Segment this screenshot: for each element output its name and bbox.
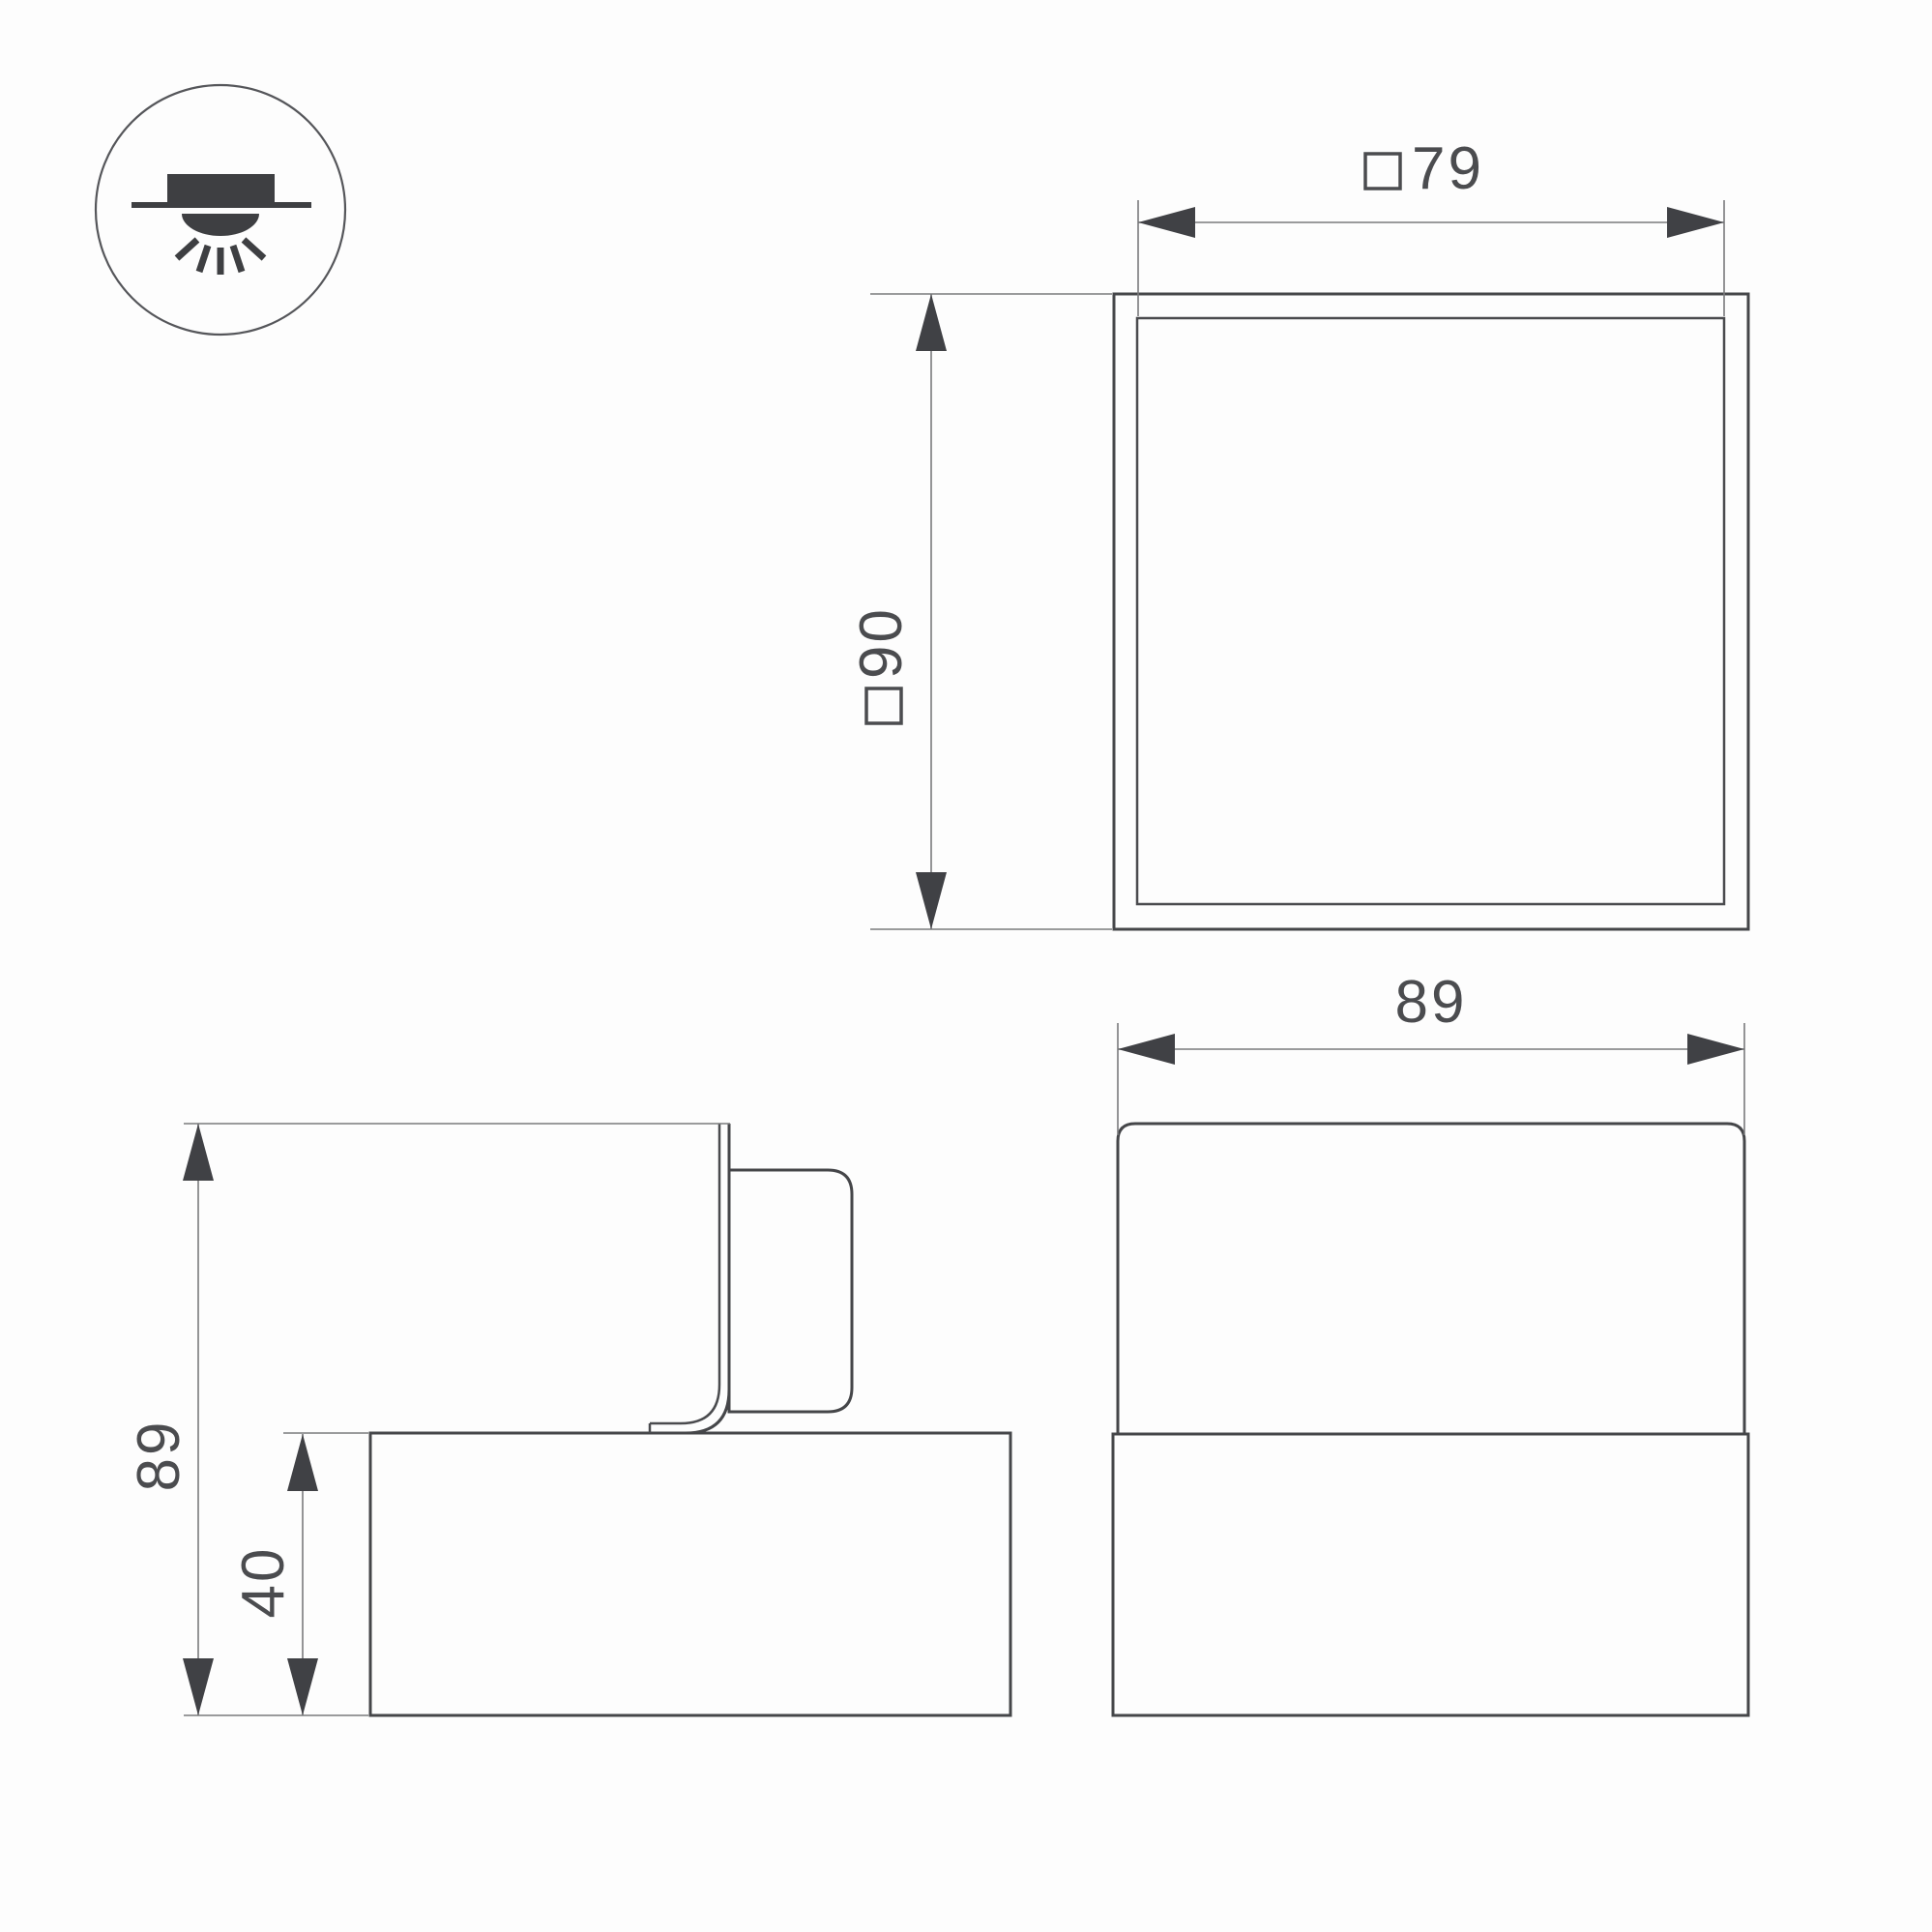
technical-drawing-page: 79 90 [0,0,1932,1932]
bracket-inner-edge [650,1124,719,1423]
ceiling-line-icon [132,202,311,208]
dimension-drawing-svg: 79 90 [0,0,1932,1932]
light-ray-icon [244,240,264,258]
arrowhead-up [916,294,947,351]
top-view: 79 90 [848,135,1748,929]
arrowhead-right [1667,207,1724,238]
top-view-inner-square [1137,318,1724,904]
side-view-base [370,1433,1010,1715]
top-view-outer-square [1114,294,1748,929]
arrowhead-left [1138,207,1195,238]
mounting-type-icon [96,85,345,335]
dimension-top-height: 90 [848,294,1112,929]
arrowhead-down [287,1658,318,1715]
side-view: 89 40 [126,1124,1010,1715]
light-ray-icon [233,246,242,272]
side-base-height-label: 40 [230,1546,297,1619]
bracket-outer-edge [650,1124,729,1433]
arrowhead-left [1118,1034,1175,1065]
dimension-side-height: 89 [126,1124,730,1715]
dimension-top-width: 79 [1138,135,1724,316]
dimension-front-width: 89 [1118,969,1744,1135]
front-view: 89 [1113,969,1748,1715]
dimension-side-base-height: 40 [230,1433,368,1715]
square-symbol-prefix [866,688,901,723]
light-ray-icon [199,246,208,272]
arrowhead-down [183,1658,214,1715]
light-dome-icon [182,214,259,236]
front-view-base [1113,1434,1748,1715]
arrowhead-up [287,1434,318,1491]
square-symbol-prefix [1365,154,1400,189]
top-height-label: 90 [848,606,915,679]
top-width-label: 79 [1412,135,1484,202]
light-rays-icon [177,240,264,275]
arrowhead-right [1687,1034,1744,1065]
side-view-bracket [650,1124,729,1433]
side-view-connector-box [729,1170,852,1412]
arrowhead-up [183,1124,214,1181]
front-width-label: 89 [1395,969,1468,1036]
front-view-head [1118,1124,1744,1434]
arrowhead-down [916,872,947,929]
light-ray-icon [177,240,197,258]
fixture-body-icon [167,174,275,204]
icon-circle [96,85,345,335]
side-height-label: 89 [126,1420,192,1492]
